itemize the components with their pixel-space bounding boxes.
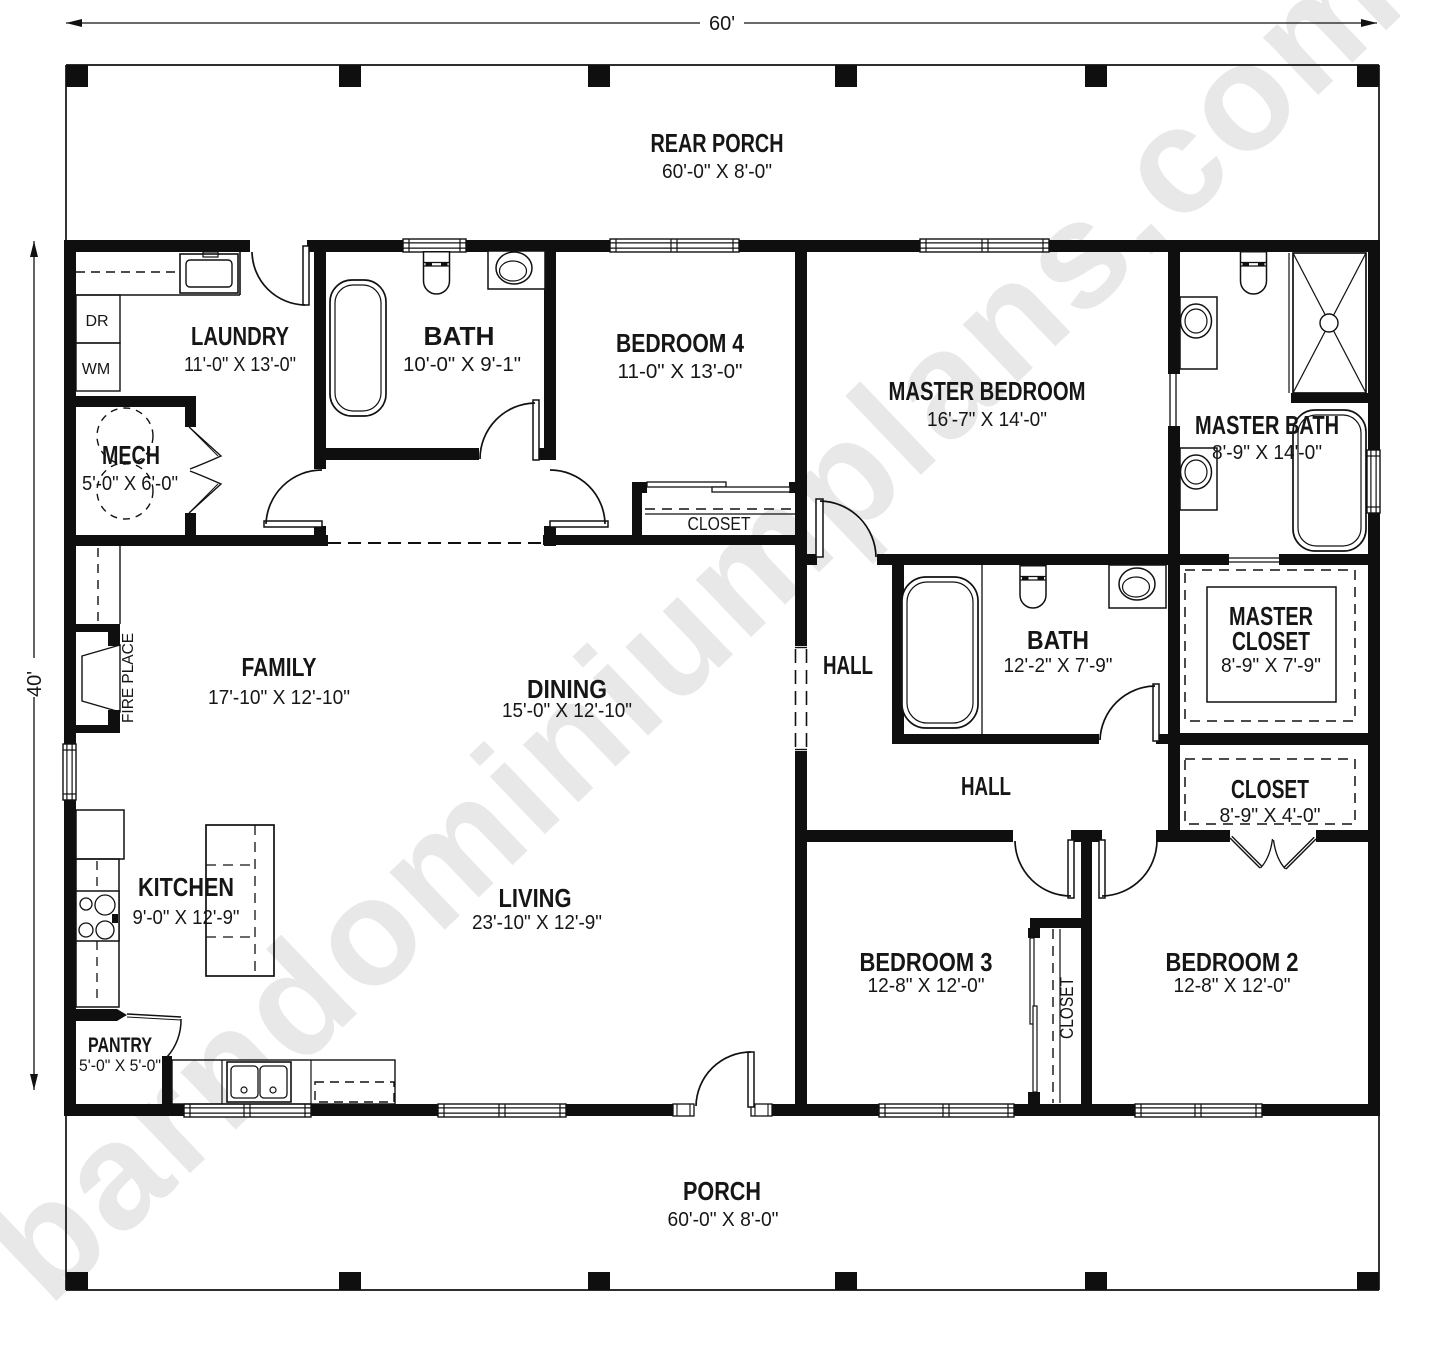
svg-text:16'-7" X 14'-0": 16'-7" X 14'-0": [927, 409, 1047, 431]
svg-text:8'-9" X 7'-9": 8'-9" X 7'-9": [1221, 655, 1321, 677]
svg-text:BEDROOM 3: BEDROOM 3: [860, 947, 993, 977]
svg-text:60'-0" X 8'-0": 60'-0" X 8'-0": [662, 161, 772, 183]
svg-text:CLOSET: CLOSET: [688, 514, 751, 534]
svg-text:FAMILY: FAMILY: [242, 652, 317, 682]
svg-text:BATH: BATH: [424, 321, 495, 351]
svg-text:KITCHEN: KITCHEN: [138, 872, 234, 902]
svg-text:8'-9" X 4'-0": 8'-9" X 4'-0": [1220, 805, 1321, 827]
svg-text:15'-0" X 12'-10": 15'-0" X 12'-10": [502, 700, 632, 722]
svg-text:12'-2" X 7'-9": 12'-2" X 7'-9": [1004, 655, 1113, 677]
svg-text:HALL: HALL: [823, 650, 873, 680]
svg-text:12-8" X 12'-0": 12-8" X 12'-0": [868, 975, 985, 997]
svg-text:CLOSET: CLOSET: [1232, 626, 1310, 656]
svg-text:12-8" X 12'-0": 12-8" X 12'-0": [1174, 975, 1291, 997]
svg-text:WM: WM: [82, 361, 110, 378]
svg-text:BATH: BATH: [1027, 625, 1089, 655]
svg-text:MECH: MECH: [102, 440, 160, 470]
svg-text:40': 40': [24, 671, 46, 697]
svg-text:PORCH: PORCH: [683, 1176, 761, 1206]
svg-text:23'-10" X 12'-9": 23'-10" X 12'-9": [472, 912, 602, 934]
svg-text:9'-0" X 12'-9": 9'-0" X 12'-9": [133, 907, 240, 929]
svg-text:CLOSET: CLOSET: [1057, 977, 1077, 1039]
svg-text:11-0" X 13'-0": 11-0" X 13'-0": [618, 361, 743, 383]
svg-text:PANTRY: PANTRY: [88, 1034, 152, 1057]
svg-text:BEDROOM 2: BEDROOM 2: [1166, 947, 1299, 977]
svg-text:10'-0" X 9'-1": 10'-0" X 9'-1": [403, 354, 521, 376]
svg-text:LIVING: LIVING: [499, 883, 572, 913]
svg-text:17'-10" X 12'-10": 17'-10" X 12'-10": [208, 687, 350, 709]
svg-text:60': 60': [709, 13, 735, 35]
svg-text:DR: DR: [85, 313, 108, 330]
svg-text:LAUNDRY: LAUNDRY: [191, 321, 289, 351]
svg-text:MASTER BATH: MASTER BATH: [1195, 410, 1339, 440]
svg-text:MASTER BEDROOM: MASTER BEDROOM: [889, 376, 1086, 406]
svg-text:FIRE PLACE: FIRE PLACE: [120, 633, 137, 723]
svg-text:8'-9" X 14'-0": 8'-9" X 14'-0": [1212, 442, 1322, 464]
svg-text:11'-0" X 13'-0": 11'-0" X 13'-0": [184, 354, 296, 376]
svg-text:BEDROOM 4: BEDROOM 4: [616, 328, 744, 358]
svg-text:5'-0" X 6'-0": 5'-0" X 6'-0": [82, 473, 178, 495]
svg-text:5'-0" X 5'-0": 5'-0" X 5'-0": [79, 1056, 161, 1075]
svg-text:REAR PORCH: REAR PORCH: [651, 128, 784, 158]
svg-text:HALL: HALL: [961, 771, 1011, 801]
svg-text:60'-0" X 8'-0": 60'-0" X 8'-0": [668, 1209, 779, 1231]
svg-text:CLOSET: CLOSET: [1231, 774, 1309, 804]
